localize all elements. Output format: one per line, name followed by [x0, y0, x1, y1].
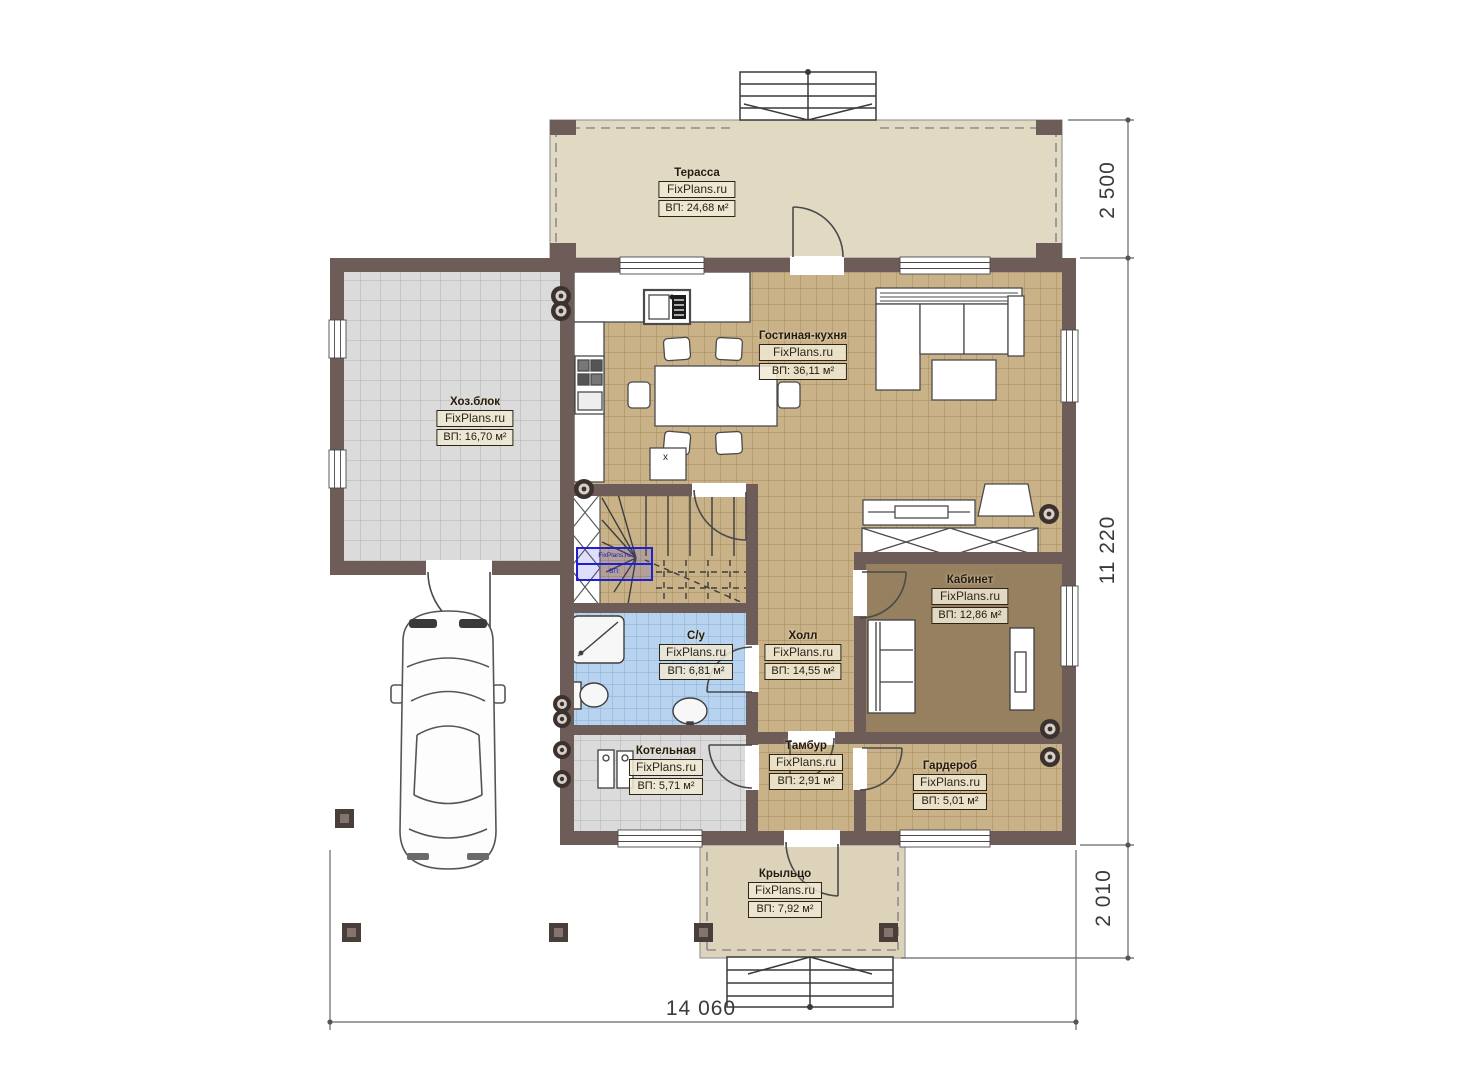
post	[335, 809, 354, 828]
room-label-tambur: Тамбур FixPlans.ru ВП: 2,91 м²	[769, 740, 843, 790]
dimension-house-depth: 11 220	[1096, 516, 1120, 585]
watermark-text: FixPlans.ru	[748, 882, 822, 899]
room-name: Котельная	[629, 745, 703, 757]
car-mirror-right	[493, 685, 505, 703]
room-area: ВП: 5,71 м²	[629, 778, 703, 795]
room-area: ВП: 5,01 м²	[913, 793, 987, 810]
room-label-kryltso: Крыльцо FixPlans.ru ВП: 7,92 м²	[748, 868, 822, 918]
coffee-table	[932, 360, 996, 400]
terrace-steps	[740, 69, 876, 120]
room-name: Терасса	[658, 167, 735, 179]
room-label-kabinet: Кабинет FixPlans.ru ВП: 12,86 м²	[931, 574, 1008, 624]
floorplan-canvas: Терасса FixPlans.ru ВП: 24,68 м² Гостина…	[0, 0, 1473, 1080]
dimension-porch-depth: 2 010	[1092, 869, 1116, 927]
window	[618, 830, 702, 847]
room-name: Тамбур	[769, 740, 843, 752]
room-area: ВП: 12,86 м²	[931, 607, 1008, 624]
vent	[1040, 719, 1060, 739]
window	[620, 257, 704, 274]
post	[549, 923, 568, 942]
kitchen-stove	[575, 356, 604, 414]
floorplan-drawing	[0, 0, 1473, 1080]
study-sofa	[868, 620, 915, 713]
post	[694, 923, 713, 942]
window	[1061, 330, 1078, 402]
post	[879, 923, 898, 942]
selected-watermark-box[interactable]: FixPlans.ru ВП:	[576, 547, 653, 581]
room-name: Хоз.блок	[436, 396, 513, 408]
room-label-kotelnaya: Котельная FixPlans.ru ВП: 5,71 м²	[629, 745, 703, 795]
watermark-text: FixPlans.ru	[764, 644, 841, 661]
watermark-text: FixPlans.ru	[759, 344, 847, 361]
vent	[553, 770, 571, 788]
dimension-terrace-depth: 2 500	[1096, 161, 1120, 219]
room-label-terrace: Терасса FixPlans.ru ВП: 24,68 м²	[658, 167, 735, 217]
room-label-hozblok: Хоз.блок FixPlans.ru ВП: 16,70 м²	[436, 396, 513, 446]
room-name: Крыльцо	[748, 868, 822, 880]
room-area: ВП: 2,91 м²	[769, 773, 843, 790]
vent	[1039, 504, 1059, 524]
closet-strip	[862, 528, 1038, 556]
watermark-text: FixPlans.ru	[436, 410, 513, 427]
post	[342, 923, 361, 942]
window	[329, 450, 346, 488]
vent	[553, 741, 571, 759]
watermark-text: FixPlans.ru	[659, 644, 733, 661]
window	[1061, 586, 1078, 666]
room-area: ВП: 7,92 м²	[748, 901, 822, 918]
car-mirror-left	[391, 685, 403, 703]
selected-watermark-line1: FixPlans.ru	[578, 549, 651, 565]
room-label-hall: Холл FixPlans.ru ВП: 14,55 м²	[764, 630, 841, 680]
vent	[553, 710, 571, 728]
vent	[1040, 747, 1060, 767]
room-name: Гардероб	[913, 760, 987, 772]
room-label-su: С/у FixPlans.ru ВП: 6,81 м²	[659, 630, 733, 680]
room-label-living: Гостиная-кухня FixPlans.ru ВП: 36,11 м²	[759, 330, 847, 380]
room-area: ВП: 14,55 м²	[764, 663, 841, 680]
vent	[551, 301, 571, 321]
watermark-text: FixPlans.ru	[658, 181, 735, 198]
terrace-deck	[550, 120, 1062, 258]
window	[900, 830, 990, 847]
toilet	[571, 682, 608, 709]
watermark-text: FixPlans.ru	[769, 754, 843, 771]
window	[329, 320, 346, 358]
table-marker: x	[663, 452, 668, 463]
room-area: ВП: 36,11 м²	[759, 363, 847, 380]
window	[900, 257, 990, 274]
room-area: ВП: 24,68 м²	[658, 200, 735, 217]
car-headlight-left	[409, 619, 437, 628]
selected-watermark-line2: ВП:	[578, 565, 651, 579]
kitchen-sink	[644, 290, 690, 324]
armchair	[978, 484, 1034, 516]
car	[391, 611, 505, 869]
car-headlight-right	[459, 619, 487, 628]
room-name: Гостиная-кухня	[759, 330, 847, 342]
watermark-text: FixPlans.ru	[913, 774, 987, 791]
room-name: Кабинет	[931, 574, 1008, 586]
vent	[574, 479, 594, 499]
side-table	[650, 448, 686, 480]
watermark-text: FixPlans.ru	[629, 759, 703, 776]
room-name: Холл	[764, 630, 841, 642]
room-name: С/у	[659, 630, 733, 642]
watermark-text: FixPlans.ru	[931, 588, 1008, 605]
room-area: ВП: 16,70 м²	[436, 429, 513, 446]
porch-steps	[727, 957, 893, 1010]
dimension-house-width: 14 060	[666, 997, 736, 1021]
room-area: ВП: 6,81 м²	[659, 663, 733, 680]
room-label-garderob: Гардероб FixPlans.ru ВП: 5,01 м²	[913, 760, 987, 810]
